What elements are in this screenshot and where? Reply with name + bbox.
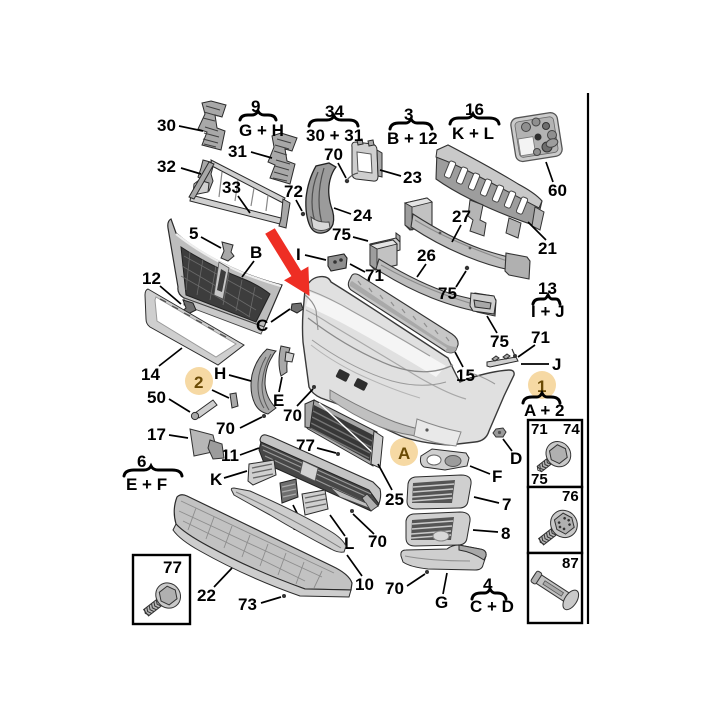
- svg-text:C: C: [256, 316, 268, 335]
- svg-text:77: 77: [163, 558, 182, 577]
- svg-text:G + H: G + H: [239, 121, 284, 140]
- svg-text:21: 21: [538, 239, 557, 258]
- svg-text:A + 2: A + 2: [524, 401, 564, 420]
- svg-text:12: 12: [142, 269, 161, 288]
- svg-text:J: J: [552, 355, 561, 374]
- svg-text:7: 7: [502, 495, 511, 514]
- svg-text:75: 75: [531, 471, 548, 488]
- svg-text:14: 14: [141, 365, 160, 384]
- svg-text:H: H: [214, 364, 226, 383]
- svg-text:75: 75: [490, 332, 509, 351]
- svg-text:I + J: I + J: [531, 302, 565, 321]
- svg-text:E + F: E + F: [126, 475, 167, 494]
- svg-text:23: 23: [403, 168, 422, 187]
- svg-text:15: 15: [456, 366, 475, 385]
- svg-text:8: 8: [501, 524, 510, 543]
- svg-text:72: 72: [284, 182, 303, 201]
- svg-text:G: G: [435, 593, 448, 612]
- svg-text:C + D: C + D: [470, 597, 514, 616]
- svg-text:A: A: [398, 444, 410, 463]
- svg-text:60: 60: [548, 181, 567, 200]
- svg-text:24: 24: [353, 206, 372, 225]
- svg-text:70: 70: [216, 419, 235, 438]
- svg-text:70: 70: [324, 145, 343, 164]
- svg-text:70: 70: [385, 579, 404, 598]
- svg-text:L: L: [344, 534, 354, 553]
- svg-text:27: 27: [452, 207, 471, 226]
- svg-text:30: 30: [157, 116, 176, 135]
- svg-text:32: 32: [157, 157, 176, 176]
- svg-text:73: 73: [238, 595, 257, 614]
- svg-text:74: 74: [563, 421, 580, 438]
- svg-text:25: 25: [385, 490, 404, 509]
- svg-text:22: 22: [197, 586, 216, 605]
- svg-text:70: 70: [283, 406, 302, 425]
- svg-text:K: K: [210, 470, 223, 489]
- svg-text:17: 17: [147, 425, 166, 444]
- svg-text:D: D: [510, 449, 522, 468]
- svg-text:B + 12: B + 12: [387, 129, 438, 148]
- svg-text:70: 70: [368, 532, 387, 551]
- svg-text:71: 71: [531, 421, 548, 438]
- svg-text:50: 50: [147, 388, 166, 407]
- svg-text:33: 33: [222, 178, 241, 197]
- svg-text:75: 75: [438, 284, 457, 303]
- svg-text:6: 6: [137, 452, 146, 471]
- svg-text:71: 71: [531, 328, 550, 347]
- svg-text:10: 10: [355, 575, 374, 594]
- svg-text:31: 31: [228, 142, 247, 161]
- svg-text:87: 87: [562, 555, 579, 572]
- svg-text:B: B: [250, 243, 262, 262]
- svg-text:75: 75: [332, 225, 351, 244]
- svg-text:F: F: [492, 467, 502, 486]
- svg-text:30 + 31: 30 + 31: [306, 126, 363, 145]
- svg-text:K + L: K + L: [452, 124, 494, 143]
- svg-text:26: 26: [417, 246, 436, 265]
- svg-text:I: I: [296, 245, 301, 264]
- svg-text:5: 5: [189, 224, 198, 243]
- svg-text:76: 76: [562, 488, 579, 505]
- svg-text:2: 2: [194, 373, 203, 392]
